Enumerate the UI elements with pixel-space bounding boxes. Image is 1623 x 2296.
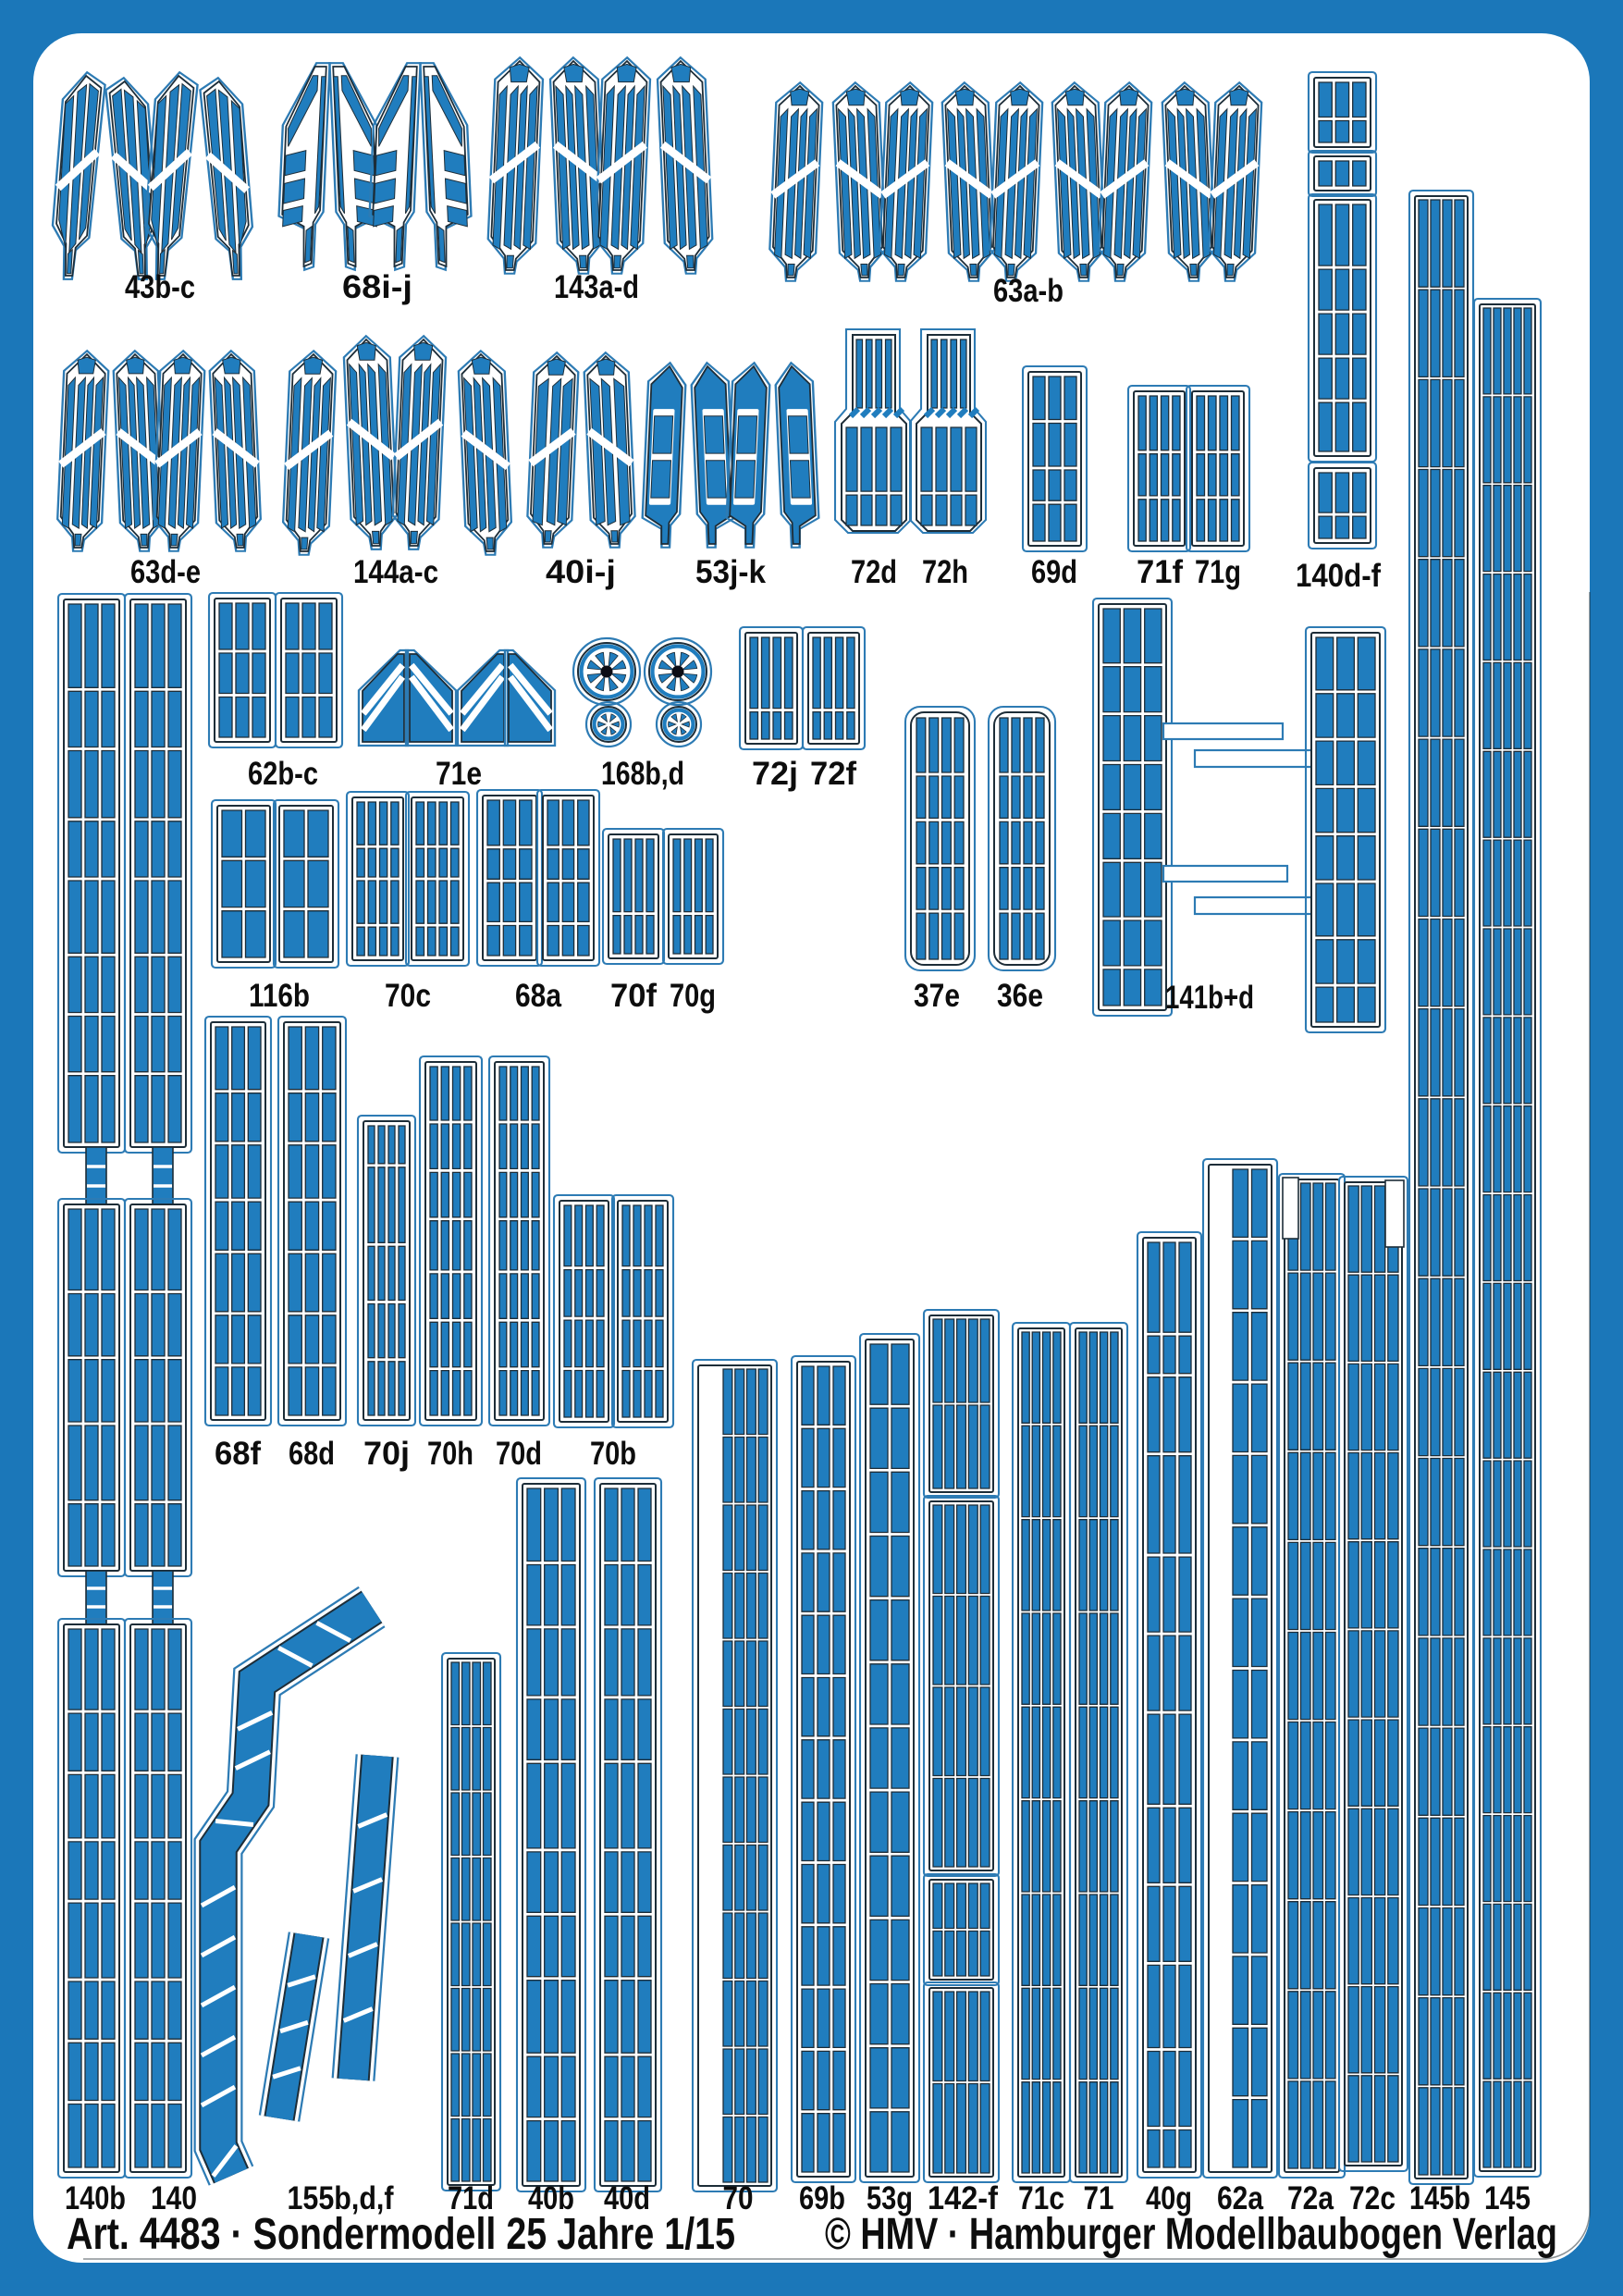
svg-text:63d-e: 63d-e: [130, 554, 201, 590]
svg-text:53j-k: 53j-k: [695, 554, 767, 590]
svg-text:143a-d: 143a-d: [554, 269, 639, 305]
svg-text:70h: 70h: [427, 1436, 473, 1472]
svg-text:© HMV · Hamburger Modellbaubog: © HMV · Hamburger Modellbaubogen Verlag: [825, 2210, 1557, 2259]
svg-text:68a: 68a: [515, 978, 561, 1014]
svg-text:Art. 4483 · Sondermodell 25 Ja: Art. 4483 · Sondermodell 25 Jahre 1/15: [67, 2210, 735, 2259]
svg-text:36e: 36e: [997, 978, 1043, 1014]
svg-text:72d: 72d: [851, 554, 897, 590]
svg-text:70j: 70j: [363, 1436, 410, 1472]
svg-text:70b: 70b: [590, 1436, 636, 1472]
svg-text:70c: 70c: [385, 978, 431, 1014]
svg-text:70d: 70d: [496, 1436, 542, 1472]
svg-text:68i-j: 68i-j: [342, 269, 412, 305]
svg-text:116b: 116b: [249, 978, 310, 1014]
svg-text:68f: 68f: [215, 1436, 261, 1472]
svg-text:140d-f: 140d-f: [1296, 558, 1381, 594]
svg-text:70f: 70f: [610, 978, 657, 1014]
svg-text:71g: 71g: [1195, 554, 1241, 590]
svg-text:69d: 69d: [1031, 554, 1077, 590]
svg-text:62b-c: 62b-c: [248, 756, 318, 792]
svg-text:71e: 71e: [436, 756, 482, 792]
svg-text:63a-b: 63a-b: [993, 273, 1064, 309]
svg-text:71f: 71f: [1137, 554, 1183, 590]
svg-text:40i-j: 40i-j: [546, 554, 616, 590]
svg-text:72f: 72f: [810, 756, 856, 792]
svg-text:37e: 37e: [914, 978, 960, 1014]
svg-text:168b,d: 168b,d: [601, 756, 684, 792]
svg-text:68d: 68d: [289, 1436, 335, 1472]
svg-text:141b+d: 141b+d: [1165, 980, 1254, 1016]
svg-text:72h: 72h: [922, 554, 968, 590]
svg-text:43b-c: 43b-c: [125, 269, 195, 305]
svg-text:144a-c: 144a-c: [353, 554, 438, 590]
svg-text:70g: 70g: [670, 978, 716, 1014]
svg-text:72j: 72j: [752, 756, 798, 792]
